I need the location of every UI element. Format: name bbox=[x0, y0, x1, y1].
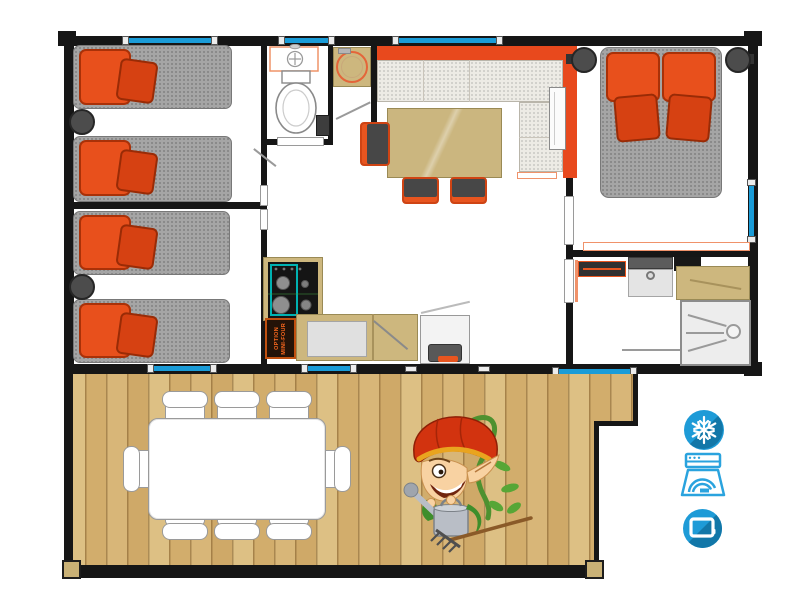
sofa-seam bbox=[469, 60, 470, 102]
window-bedroom2 bbox=[151, 366, 213, 371]
terrace-chair-back bbox=[162, 391, 208, 408]
nightstand bbox=[571, 47, 597, 73]
shower-drain bbox=[726, 324, 741, 339]
wall-bedroom-divider bbox=[64, 202, 266, 209]
nightstand bbox=[725, 47, 751, 73]
kitchen-sink bbox=[307, 321, 367, 357]
deck-edge-left bbox=[64, 374, 73, 570]
sofa-cushions-top bbox=[377, 60, 563, 102]
washbasin-top bbox=[628, 257, 673, 269]
bedside-table bbox=[69, 274, 95, 300]
deck-post bbox=[62, 560, 81, 579]
bedroom2-door bbox=[260, 209, 268, 230]
floor-plan: OPTION MINI-FOUR bbox=[0, 0, 800, 608]
mini-oven: OPTION MINI-FOUR bbox=[265, 318, 296, 359]
bathmat-line bbox=[622, 349, 680, 351]
snowflake-icon bbox=[683, 409, 725, 451]
terrace-chair-back bbox=[123, 446, 140, 492]
bed-pillow bbox=[115, 224, 158, 271]
window-wc bbox=[282, 38, 331, 43]
wc-bin bbox=[316, 115, 330, 136]
tv-panel-line bbox=[554, 92, 555, 145]
wardrobe bbox=[583, 242, 750, 251]
window-shower-room bbox=[556, 369, 633, 374]
corner-cap bbox=[744, 31, 762, 46]
dining-chair bbox=[360, 122, 390, 166]
leaf bbox=[500, 482, 519, 494]
deck-edge-right bbox=[633, 374, 638, 426]
bedroom1-door bbox=[260, 185, 268, 206]
wall-master-shower bbox=[566, 250, 758, 257]
gas-hob bbox=[268, 262, 318, 318]
deck-edge-step-v bbox=[594, 421, 599, 569]
bed-pillow bbox=[115, 58, 158, 105]
hand bbox=[447, 496, 456, 505]
shower-room-door bbox=[564, 259, 574, 303]
dining-table bbox=[387, 108, 502, 178]
bed-pillow bbox=[613, 93, 661, 143]
dishwasher-icon bbox=[679, 452, 727, 500]
bed-pillow bbox=[115, 149, 158, 196]
leaf bbox=[505, 500, 523, 516]
sofa-side-marker bbox=[517, 172, 557, 179]
terrace-chair-back bbox=[266, 391, 312, 408]
washbasin-faucet bbox=[646, 271, 655, 280]
door-swing-marker bbox=[575, 260, 578, 302]
mini-oven-label-line1: OPTION bbox=[274, 327, 280, 350]
bedside-table bbox=[69, 109, 95, 135]
mini-oven-label-line2: MINI-FOUR bbox=[281, 323, 287, 355]
terrace-chair-back bbox=[334, 446, 351, 492]
terrace-table bbox=[148, 418, 326, 520]
dining-chair bbox=[402, 177, 439, 204]
door-hardware bbox=[478, 366, 490, 372]
window-bedroom1 bbox=[126, 38, 214, 43]
dining-chair bbox=[450, 177, 487, 204]
bed-pillow bbox=[115, 312, 158, 359]
can-rose bbox=[404, 483, 418, 497]
sofa-seam bbox=[423, 60, 424, 102]
washer-drum-inner bbox=[341, 56, 363, 78]
wc-door bbox=[277, 137, 324, 146]
bed-pillow bbox=[665, 93, 713, 143]
deck-edge-step bbox=[594, 421, 638, 426]
corner-cap bbox=[58, 31, 76, 46]
master-door bbox=[564, 196, 574, 245]
door-hardware bbox=[405, 366, 417, 372]
towel-radiator-line bbox=[583, 268, 621, 270]
washer-panel bbox=[338, 48, 351, 54]
window-kitchen bbox=[305, 366, 353, 371]
terrace-chair-back bbox=[214, 523, 260, 540]
fridge-handle bbox=[438, 356, 458, 362]
deck-post bbox=[585, 560, 604, 579]
window-master-right bbox=[749, 183, 754, 239]
tv-icon bbox=[682, 508, 723, 549]
deck-edge-bottom bbox=[64, 565, 604, 578]
shower-line bbox=[686, 332, 724, 334]
fridge-lid-line bbox=[421, 301, 470, 314]
terrace-chair-back bbox=[162, 523, 208, 540]
terrace-chair-back bbox=[214, 391, 260, 408]
gardener-elf-mascot bbox=[398, 408, 538, 563]
window-living bbox=[396, 38, 499, 43]
terrace-chair-back bbox=[266, 523, 312, 540]
washer-door-swing bbox=[336, 101, 371, 119]
sofa-back-top bbox=[377, 46, 577, 60]
tv-panel bbox=[549, 87, 566, 150]
